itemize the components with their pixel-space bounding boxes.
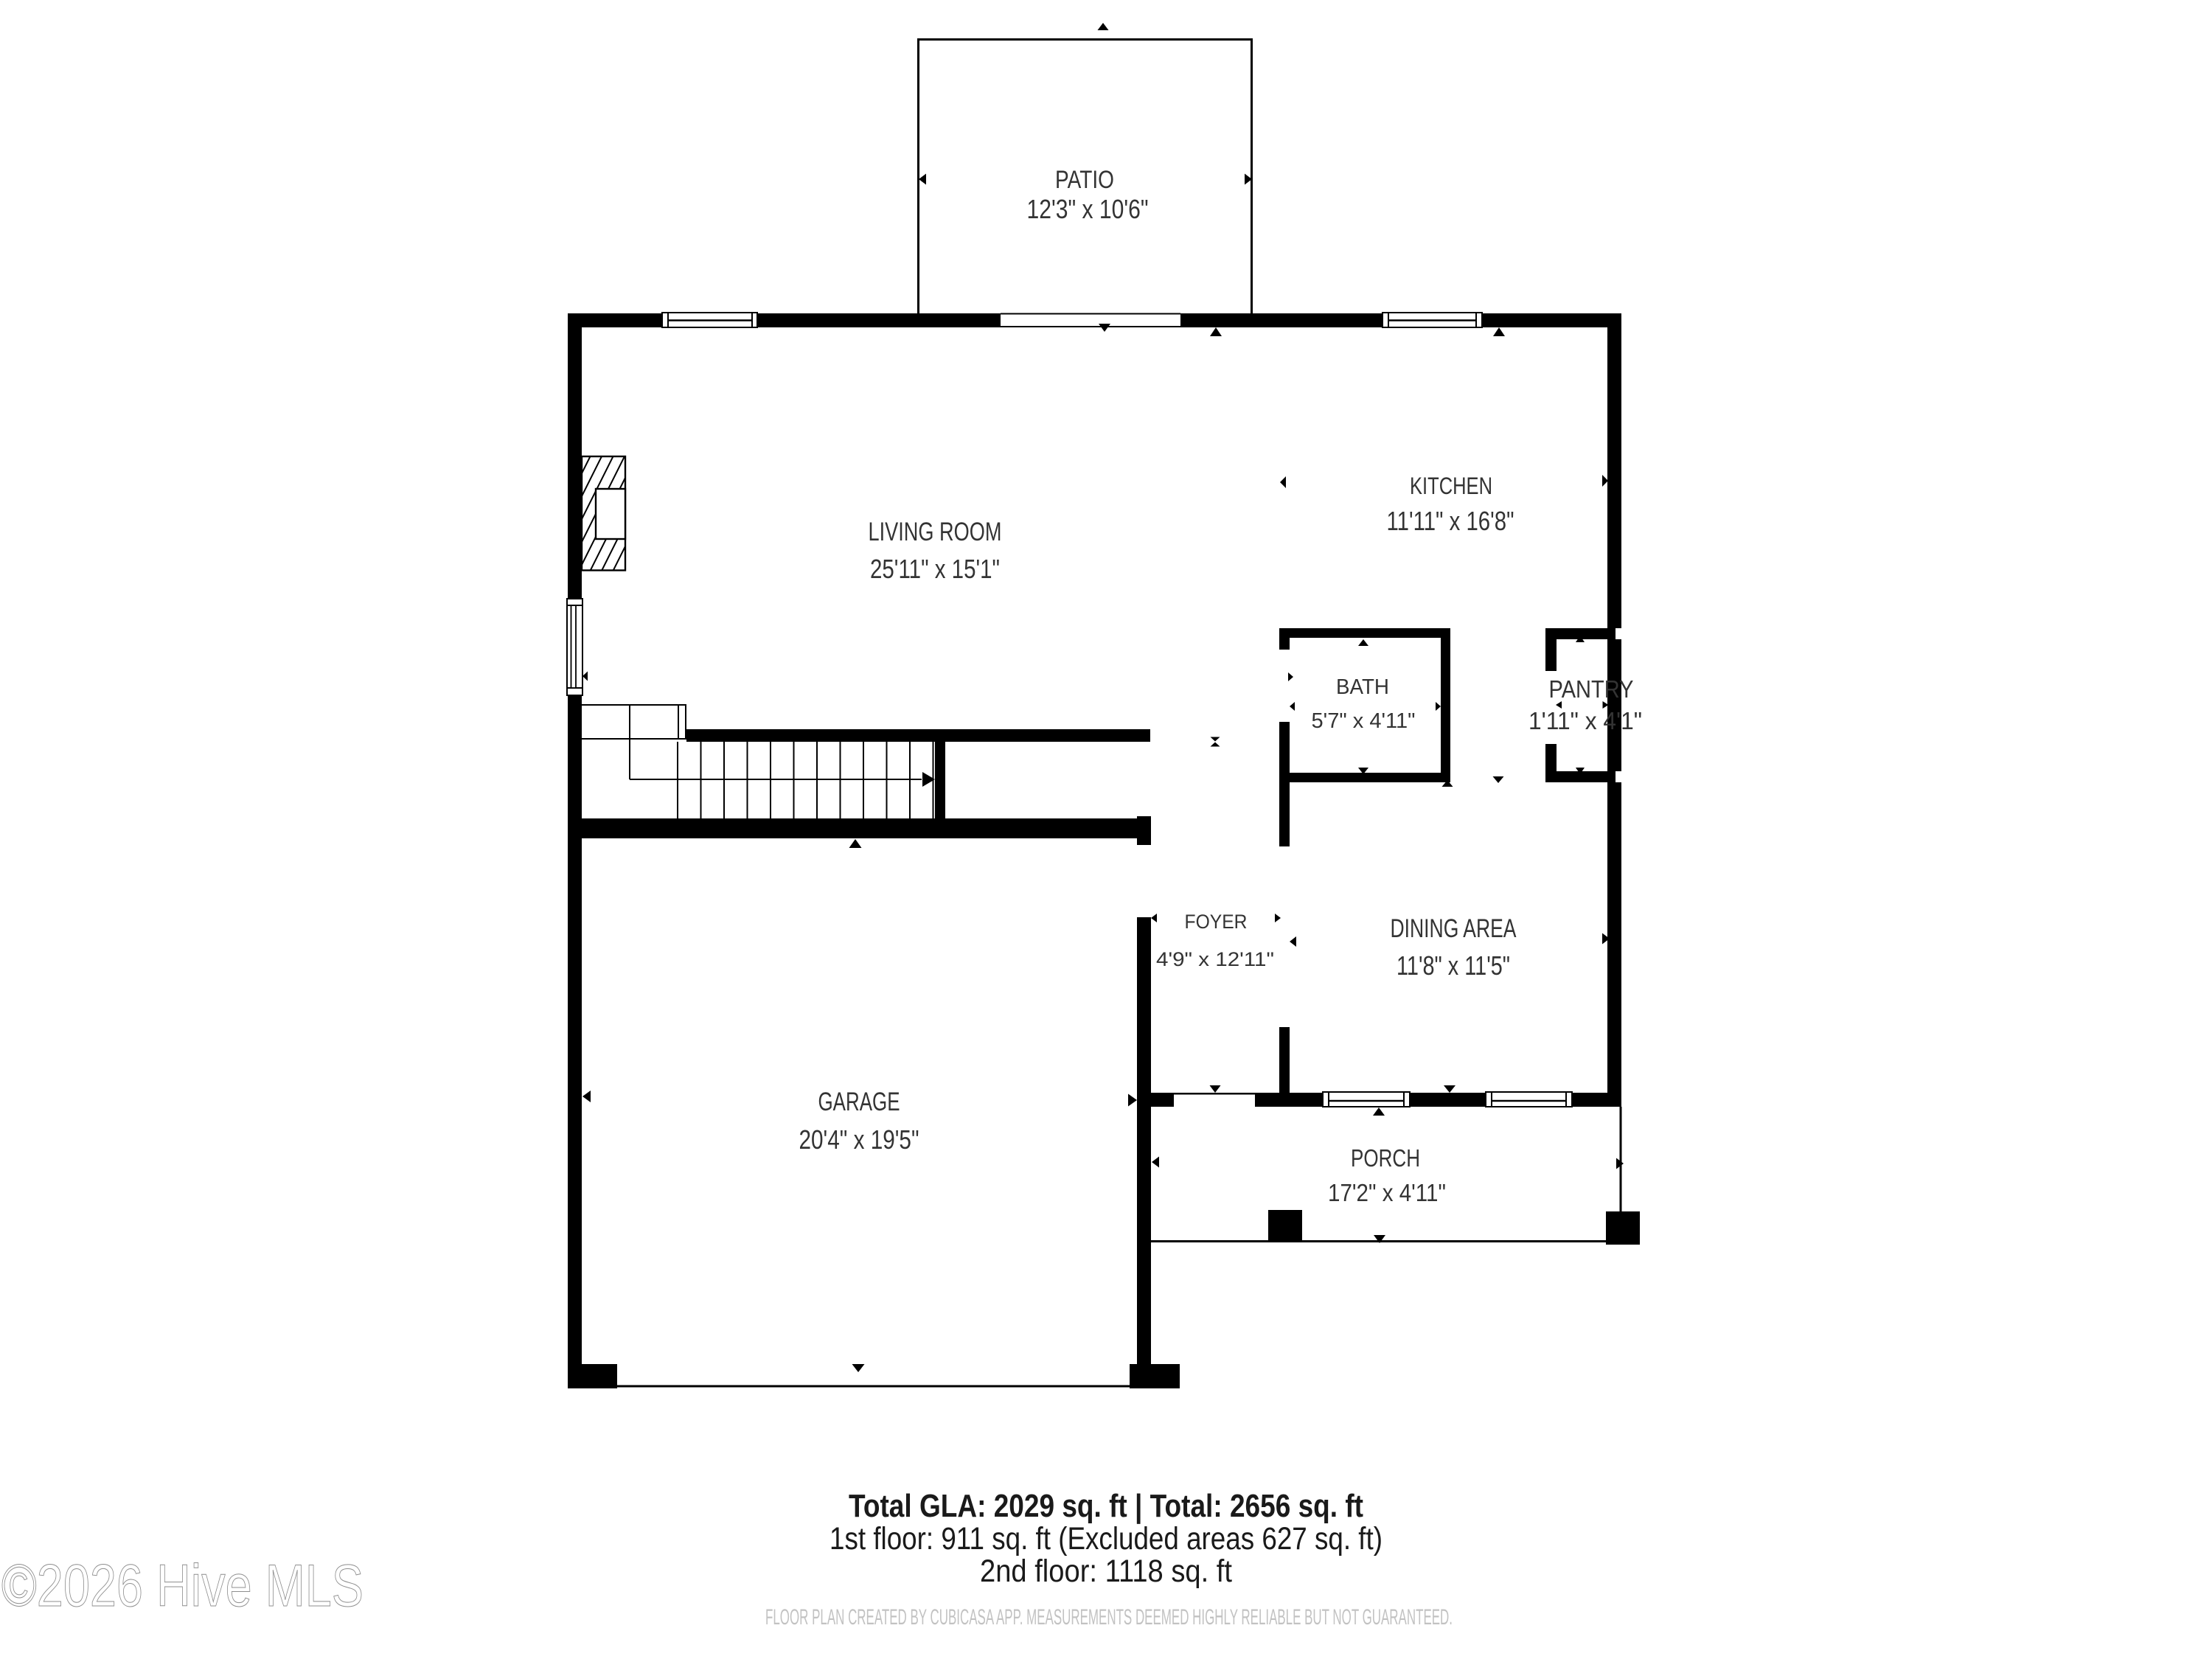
svg-text:17'2" x 4'11": 17'2" x 4'11" <box>1328 1179 1446 1206</box>
svg-text:PORCH: PORCH <box>1351 1144 1420 1172</box>
svg-text:Total GLA: 2029 sq. ft | Total: Total GLA: 2029 sq. ft | Total: 2656 sq.… <box>849 1488 1363 1525</box>
svg-text:25'11" x 15'1": 25'11" x 15'1" <box>870 554 1000 584</box>
svg-text:20'4" x 19'5": 20'4" x 19'5" <box>799 1124 919 1155</box>
svg-text:1st floor: 911 sq. ft (Exclude: 1st floor: 911 sq. ft (Excluded areas 62… <box>829 1521 1382 1557</box>
svg-text:PATIO: PATIO <box>1055 166 1114 194</box>
svg-text:FLOOR PLAN CREATED BY CUBICASA: FLOOR PLAN CREATED BY CUBICASA APP. MEAS… <box>765 1605 1453 1630</box>
svg-text:11'8" x 11'5": 11'8" x 11'5" <box>1397 950 1510 981</box>
svg-text:©2026 Hive MLS: ©2026 Hive MLS <box>1 1553 364 1619</box>
svg-text:LIVING ROOM: LIVING ROOM <box>869 518 1002 546</box>
svg-text:12'3" x 10'6": 12'3" x 10'6" <box>1027 194 1149 224</box>
svg-text:4'9" x 12'11": 4'9" x 12'11" <box>1156 948 1274 970</box>
svg-text:DINING AREA: DINING AREA <box>1391 914 1517 943</box>
svg-text:KITCHEN: KITCHEN <box>1410 473 1492 499</box>
svg-text:5'7" x 4'11": 5'7" x 4'11" <box>1312 709 1416 733</box>
svg-text:FOYER: FOYER <box>1185 911 1248 933</box>
svg-text:GARAGE: GARAGE <box>818 1088 900 1116</box>
svg-text:2nd floor: 1118 sq. ft: 2nd floor: 1118 sq. ft <box>980 1554 1232 1589</box>
svg-text:1'11" x 4'1": 1'11" x 4'1" <box>1528 707 1642 734</box>
svg-text:BATH: BATH <box>1336 675 1389 699</box>
svg-text:PANTRY: PANTRY <box>1549 675 1634 703</box>
svg-text:11'11" x 16'8": 11'11" x 16'8" <box>1387 506 1514 536</box>
